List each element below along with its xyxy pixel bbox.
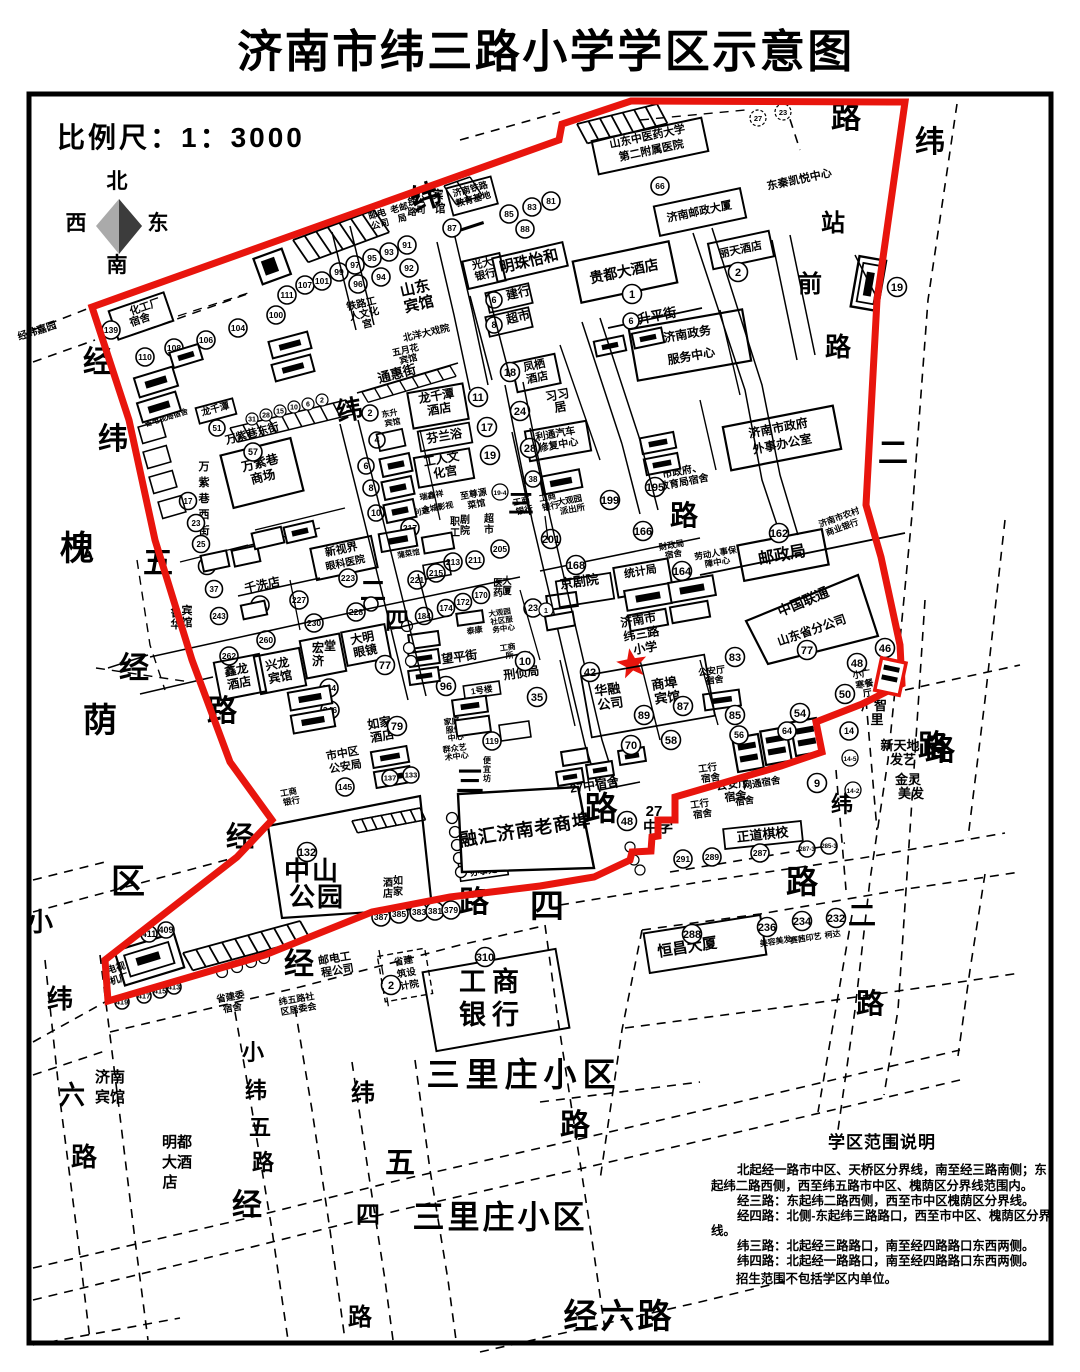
svg-text:济: 济 — [312, 653, 325, 668]
svg-text:济南市纬三路小学学区示意图: 济南市纬三路小学学区示意图 — [237, 26, 855, 77]
svg-text:15: 15 — [276, 409, 284, 416]
svg-text:14: 14 — [844, 726, 854, 736]
svg-text:路: 路 — [252, 1150, 275, 1175]
svg-text:48: 48 — [621, 816, 633, 828]
svg-text:23: 23 — [192, 519, 201, 528]
svg-text:店: 店 — [383, 887, 393, 900]
svg-text:小: 小 — [242, 1040, 264, 1065]
svg-text:19-4: 19-4 — [493, 490, 506, 497]
svg-text:东: 东 — [148, 211, 169, 235]
svg-text:比例尺：1：3000: 比例尺：1：3000 — [57, 122, 305, 153]
svg-text:19: 19 — [891, 282, 903, 294]
svg-text:110: 110 — [138, 352, 152, 362]
svg-text:107: 107 — [298, 280, 312, 290]
svg-text:公园: 公园 — [289, 882, 345, 912]
svg-text:线。: 线。 — [711, 1223, 736, 1238]
svg-text:54: 54 — [794, 708, 807, 720]
svg-text:荫: 荫 — [83, 702, 117, 740]
svg-text:8: 8 — [368, 483, 373, 493]
svg-text:46: 46 — [879, 643, 891, 655]
svg-text:119: 119 — [485, 736, 499, 746]
svg-text:1: 1 — [544, 606, 548, 615]
svg-text:金灵: 金灵 — [894, 772, 922, 787]
svg-text:经三路：东起纬二路西侧，西至市中区槐荫区分界线。: 经三路：东起纬二路西侧，西至市中区槐荫区分界线。 — [737, 1193, 1034, 1208]
svg-text:288: 288 — [683, 929, 701, 941]
svg-text:路: 路 — [856, 988, 885, 1019]
svg-text:路: 路 — [831, 102, 862, 135]
svg-text:85: 85 — [504, 209, 514, 219]
svg-text:236: 236 — [758, 922, 776, 934]
svg-text:37: 37 — [210, 585, 219, 594]
svg-text:10: 10 — [519, 656, 531, 668]
svg-text:路: 路 — [825, 332, 852, 362]
svg-text:287: 287 — [753, 848, 767, 858]
svg-text:10: 10 — [290, 405, 298, 412]
svg-text:纬三路：北起经三路路口，南至经四路路口东西两侧。: 纬三路：北起经三路路口，南至经四路路口东西两侧。 — [737, 1238, 1034, 1253]
svg-text:70: 70 — [625, 740, 637, 752]
svg-text:232: 232 — [827, 913, 845, 925]
svg-text:司: 司 — [416, 205, 425, 215]
svg-text:纬: 纬 — [47, 984, 73, 1014]
svg-text:学区范围说明: 学区范围说明 — [828, 1132, 936, 1152]
svg-text:14-5: 14-5 — [843, 756, 856, 763]
svg-text:家: 家 — [393, 885, 404, 898]
svg-text:工商: 工商 — [459, 967, 525, 997]
svg-text:纬: 纬 — [98, 423, 128, 456]
svg-text:287-3: 287-3 — [799, 847, 815, 853]
svg-text:379: 379 — [444, 905, 458, 915]
svg-text:槐: 槐 — [60, 530, 94, 568]
svg-text:195: 195 — [646, 482, 664, 494]
svg-text:56: 56 — [734, 730, 744, 740]
svg-text:紫: 紫 — [199, 475, 210, 489]
svg-text:383: 383 — [412, 907, 426, 917]
svg-text:6: 6 — [491, 295, 496, 305]
svg-text:14-2: 14-2 — [846, 788, 859, 795]
svg-text:1: 1 — [629, 289, 635, 301]
svg-text:宏: 宏 — [312, 640, 324, 655]
svg-text:6: 6 — [628, 316, 633, 326]
svg-text:132: 132 — [298, 847, 316, 859]
svg-text:94: 94 — [376, 272, 386, 282]
svg-text:纬: 纬 — [334, 393, 365, 427]
svg-text:285-3: 285-3 — [821, 844, 837, 850]
svg-text:站: 站 — [821, 210, 845, 237]
svg-text:济南: 济南 — [95, 1068, 125, 1086]
svg-text:2: 2 — [367, 408, 372, 418]
svg-text:50: 50 — [839, 689, 851, 701]
svg-text:纬: 纬 — [351, 1079, 375, 1107]
svg-text:小: 小 — [27, 907, 53, 937]
svg-text:美发: 美发 — [898, 786, 925, 801]
svg-text:174: 174 — [439, 604, 453, 613]
svg-text:纬: 纬 — [245, 1078, 267, 1103]
svg-text:西: 西 — [66, 212, 87, 235]
svg-text:巷: 巷 — [198, 491, 211, 505]
svg-text:6: 6 — [306, 402, 310, 409]
svg-text:纬: 纬 — [915, 126, 945, 159]
svg-text:17: 17 — [184, 497, 193, 506]
svg-text:新天地: 新天地 — [880, 738, 919, 753]
svg-text:市: 市 — [484, 523, 494, 536]
svg-text:宾馆: 宾馆 — [95, 1088, 125, 1106]
svg-text:260: 260 — [259, 635, 273, 645]
svg-text:宾: 宾 — [433, 187, 444, 201]
svg-text:24: 24 — [514, 406, 527, 418]
svg-text:二: 二 — [878, 437, 908, 470]
svg-text:所: 所 — [504, 650, 514, 661]
svg-text:职: 职 — [450, 516, 460, 528]
svg-text:路: 路 — [71, 1142, 98, 1172]
svg-text:馆: 馆 — [435, 201, 446, 215]
svg-text:81: 81 — [546, 196, 556, 206]
svg-text:166: 166 — [634, 526, 652, 538]
svg-text:104: 104 — [231, 323, 245, 333]
svg-text:堂: 堂 — [324, 638, 336, 653]
svg-text:211: 211 — [468, 555, 482, 565]
svg-text:234: 234 — [793, 916, 812, 928]
svg-text:91: 91 — [402, 240, 412, 250]
svg-text:发艺: 发艺 — [889, 752, 916, 767]
svg-text:经: 经 — [284, 947, 314, 981]
svg-text:10: 10 — [371, 508, 381, 518]
svg-text:便: 便 — [483, 755, 492, 765]
svg-text:93: 93 — [384, 247, 394, 257]
svg-text:164: 164 — [673, 566, 692, 578]
svg-text:95: 95 — [367, 253, 377, 263]
svg-text:199: 199 — [601, 495, 619, 507]
svg-text:27: 27 — [754, 114, 762, 123]
svg-text:四: 四 — [356, 1202, 380, 1229]
svg-text:57: 57 — [248, 447, 258, 457]
svg-text:如: 如 — [393, 874, 403, 887]
svg-text:291: 291 — [676, 854, 690, 864]
svg-text:201: 201 — [542, 534, 560, 546]
svg-text:五: 五 — [385, 1147, 415, 1180]
svg-text:南: 南 — [107, 253, 128, 277]
svg-text:85: 85 — [729, 710, 741, 722]
svg-text:66: 66 — [655, 181, 665, 191]
svg-text:205: 205 — [493, 544, 507, 554]
svg-text:83: 83 — [527, 202, 537, 212]
svg-text:酒: 酒 — [383, 876, 393, 889]
svg-text:三里庄小区: 三里庄小区 — [427, 1056, 622, 1093]
svg-text:剧: 剧 — [460, 513, 470, 526]
svg-text:96: 96 — [440, 681, 452, 693]
svg-text:北起经一路市中区、天桥区分界线，南至经三路南侧；东: 北起经一路市中区、天桥区分界线，南至经三路南侧；东 — [737, 1162, 1047, 1177]
svg-text:17: 17 — [481, 422, 493, 434]
svg-text:100: 100 — [269, 310, 283, 320]
svg-text:223: 223 — [341, 573, 355, 583]
svg-text:133: 133 — [405, 771, 418, 780]
svg-text:162: 162 — [770, 528, 788, 540]
svg-text:万: 万 — [198, 460, 210, 473]
svg-text:289: 289 — [705, 852, 719, 862]
svg-text:公: 公 — [416, 195, 425, 205]
svg-text:106: 106 — [199, 335, 213, 345]
svg-text:北: 北 — [107, 170, 128, 193]
svg-text:银行: 银行 — [459, 999, 525, 1030]
svg-text:店: 店 — [162, 1173, 177, 1191]
svg-text:路: 路 — [786, 864, 819, 900]
svg-text:里: 里 — [870, 712, 883, 727]
svg-text:2: 2 — [388, 980, 394, 992]
svg-text:243: 243 — [212, 612, 226, 621]
svg-text:大酒: 大酒 — [162, 1153, 192, 1171]
svg-text:137: 137 — [384, 774, 397, 783]
svg-text:居: 居 — [553, 399, 567, 415]
svg-text:四: 四 — [530, 888, 564, 926]
svg-text:23: 23 — [528, 603, 538, 613]
svg-text:35: 35 — [531, 692, 543, 704]
svg-text:三里庄小区: 三里庄小区 — [412, 1199, 587, 1235]
svg-text:纬四路：北起经一路路口，南至经四路路口东西两侧。: 纬四路：北起经一路路口，南至经四路路口东西两侧。 — [737, 1253, 1034, 1268]
svg-text:168: 168 — [567, 560, 585, 572]
svg-text:64: 64 — [782, 726, 792, 736]
svg-text:2: 2 — [320, 398, 324, 405]
svg-text:五: 五 — [249, 1115, 271, 1140]
svg-text:路: 路 — [348, 1303, 373, 1331]
svg-text:明都: 明都 — [162, 1134, 192, 1151]
svg-text:77: 77 — [379, 660, 391, 672]
svg-text:83: 83 — [729, 652, 741, 664]
svg-text:院: 院 — [460, 524, 470, 537]
svg-text:19: 19 — [484, 450, 496, 462]
svg-text:221: 221 — [410, 575, 424, 585]
svg-text:58: 58 — [665, 735, 677, 747]
svg-text:二: 二 — [848, 900, 876, 931]
svg-text:38: 38 — [529, 475, 538, 484]
svg-text:101: 101 — [315, 276, 329, 286]
svg-text:111: 111 — [280, 290, 294, 300]
svg-text:87: 87 — [677, 701, 689, 713]
svg-text:坊: 坊 — [483, 773, 491, 783]
svg-text:6: 6 — [363, 461, 368, 471]
svg-text:厦: 厦 — [502, 586, 512, 597]
svg-text:170: 170 — [474, 591, 488, 600]
svg-text:18: 18 — [504, 367, 516, 379]
svg-text:172: 172 — [456, 598, 470, 607]
svg-text:139: 139 — [104, 325, 118, 335]
svg-text:铁: 铁 — [407, 196, 416, 207]
svg-text:宜: 宜 — [483, 764, 491, 774]
svg-text:9: 9 — [814, 778, 820, 790]
svg-text:六: 六 — [59, 1080, 85, 1110]
svg-text:145: 145 — [338, 782, 352, 792]
svg-text:11: 11 — [472, 392, 484, 404]
svg-text:96: 96 — [353, 279, 363, 289]
svg-text:381: 381 — [428, 906, 442, 916]
svg-text:87: 87 — [447, 223, 457, 233]
svg-text:89: 89 — [638, 710, 650, 722]
svg-text:经四路：北侧-东起纬三路路口，西至市中区、槐荫区分界: 经四路：北侧-东起纬三路路口，西至市中区、槐荫区分界 — [737, 1208, 1052, 1223]
svg-text:23: 23 — [779, 108, 787, 117]
svg-text:77: 77 — [801, 645, 813, 657]
svg-text:路: 路 — [560, 1109, 591, 1142]
svg-text:2: 2 — [735, 267, 741, 279]
svg-text:25: 25 — [197, 540, 206, 549]
svg-text:起纬二路西侧，西至纬五路市中区、槐荫区分界线范围内。: 起纬二路西侧，西至纬五路市中区、槐荫区分界线范围内。 — [710, 1178, 1033, 1193]
svg-text:51: 51 — [213, 424, 222, 433]
svg-text:宾: 宾 — [182, 603, 193, 617]
svg-text:310: 310 — [476, 952, 494, 964]
svg-text:区: 区 — [111, 863, 145, 901]
svg-text:经: 经 — [232, 1188, 262, 1222]
svg-text:31: 31 — [248, 417, 256, 424]
svg-text:超: 超 — [483, 512, 495, 525]
svg-text:28: 28 — [262, 413, 270, 420]
svg-text:路: 路 — [925, 734, 956, 767]
svg-text:92: 92 — [404, 263, 414, 273]
svg-text:路: 路 — [670, 500, 699, 531]
svg-text:409: 409 — [158, 925, 173, 935]
svg-text:88: 88 — [520, 224, 530, 234]
svg-text:招生范围不包括学区内单位。: 招生范围不包括学区内单位。 — [736, 1271, 897, 1286]
svg-text:79: 79 — [391, 721, 403, 733]
svg-text:经六路: 经六路 — [564, 1298, 675, 1336]
svg-text:42: 42 — [584, 667, 596, 679]
